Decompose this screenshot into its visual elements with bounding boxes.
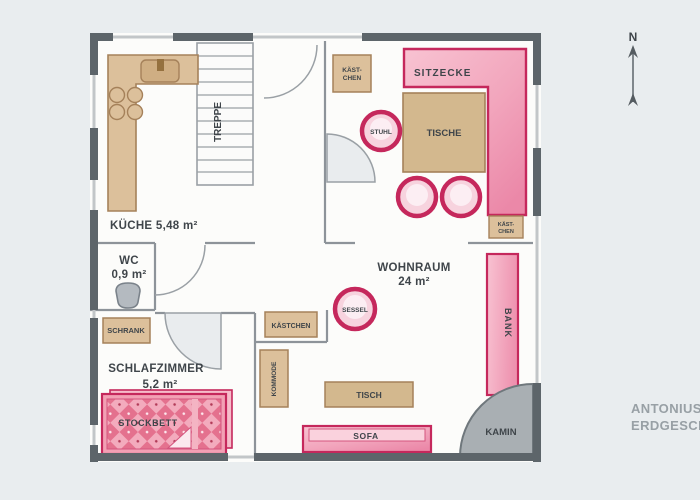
schlafzimmer-area: 5,2 m² [142,379,177,391]
wohnraum-label: WOHNRAUM [377,262,450,274]
kommode: KOMMODE [260,350,288,407]
chair-left [398,178,436,216]
kaestchen-right: KÄST- CHEN [489,216,523,238]
stairs: TREPPE [197,43,253,185]
floorplan-page: { "caption": { "line1": "ANTONIUS", "lin… [0,0,700,500]
kaestchen-flur-label: KÄSTCHEN [272,322,311,330]
stuhl-chair: STUHL [362,112,400,150]
north-arrow: N [628,30,638,106]
kaestchen-right-label-1: KÄST- [498,221,515,228]
stockbett-label: STOCKBETT [118,418,177,428]
wohnraum-area: 24 m² [398,276,430,288]
kaestchen-entry: KÄST- CHEN [333,55,371,92]
tische-label: TISCHE [427,128,462,139]
toilet [116,283,140,308]
kommode-label: KOMMODE [271,361,278,396]
tische-table: TISCHE [403,93,485,172]
caption-line1: ANTONIUS [631,401,700,416]
treppe-label: TREPPE [213,102,224,142]
sessel-armchair: SESSEL [335,289,375,329]
kamin-label: KAMIN [485,427,516,438]
kaestchen-flur: KÄSTCHEN [265,312,317,337]
north-label: N [629,30,638,44]
tisch-label: TISCH [356,390,382,400]
chair-right [442,178,480,216]
faucet [157,59,164,71]
bank-bench: BANK [487,254,518,395]
sofa-label: SOFA [353,431,379,441]
stockbett-bed: STOCKBETT [102,390,232,454]
sessel-label: SESSEL [342,307,368,314]
bank-label: BANK [503,308,513,338]
sofa: SOFA [303,426,431,452]
kaestchen-entry-label-1: KÄST- [342,66,362,74]
wc-label: WC [119,255,139,267]
floorplan-canvas: TREPPE KÄST- CHEN SITZECKE TISCHE STUHL [0,0,700,500]
schlafzimmer-label: SCHLAFZIMMER [108,363,204,375]
kueche-label: KÜCHE 5,48 m² [110,219,198,232]
schrank: SCHRANK [103,318,150,343]
wc-area: 0,9 m² [111,269,146,281]
kaestchen-right-label-2: CHEN [498,229,514,235]
caption-line2: ERDGESCHOSS [631,418,700,433]
schrank-label: SCHRANK [107,326,145,335]
tisch-table: TISCH [325,382,413,407]
sitzecke-label: SITZECKE [414,68,471,79]
stuhl-label: STUHL [370,129,392,136]
kaestchen-entry-label-2: CHEN [343,75,362,82]
arrow-fletch-icon [628,93,638,106]
